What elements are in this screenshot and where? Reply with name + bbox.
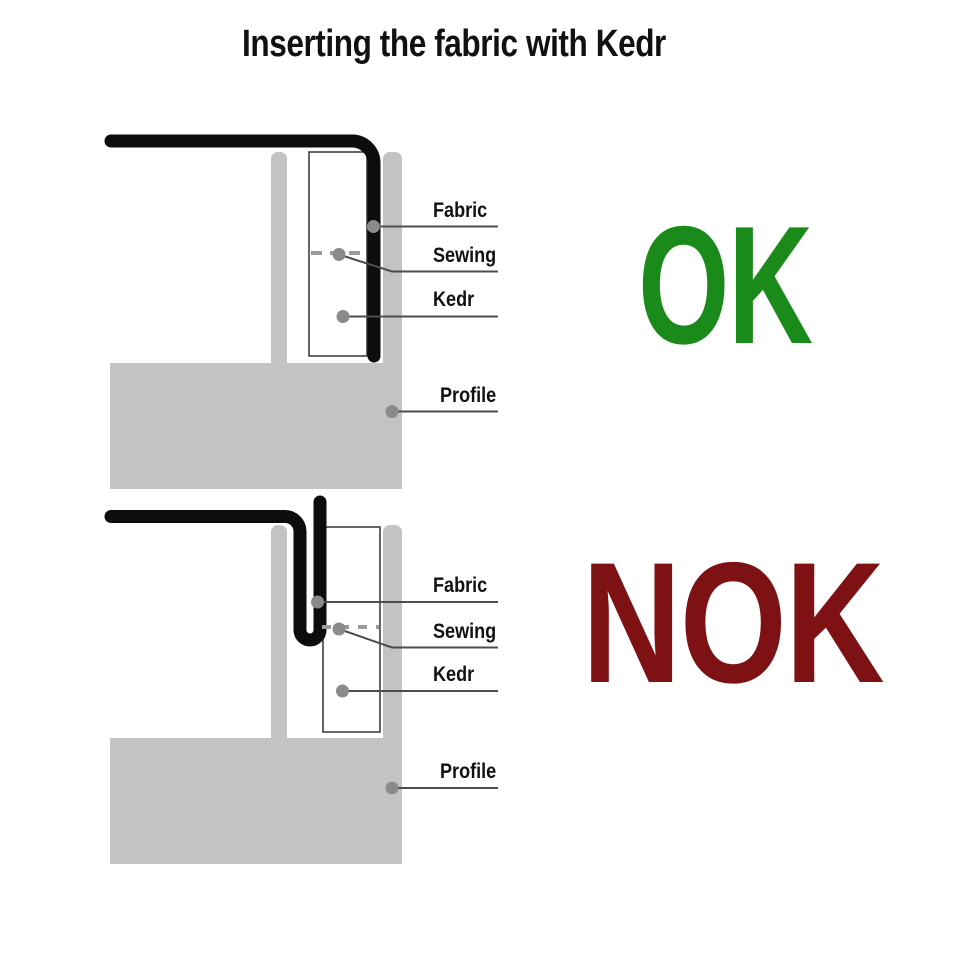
- verdict-ok-text: OK: [638, 201, 812, 369]
- nok-kedr-box: [323, 527, 380, 732]
- nok-label-kedr: Kedr: [433, 664, 474, 685]
- ok-profile-right-wall: [383, 152, 402, 370]
- ok-label-sewing: Sewing: [433, 245, 496, 266]
- ok-sewing-dot: [333, 248, 346, 261]
- nok-profile-base: [110, 738, 402, 864]
- ok-kedr-dot: [337, 310, 350, 323]
- nok-kedr-dot: [336, 685, 349, 698]
- ok-label-fabric: Fabric: [433, 200, 487, 221]
- ok-profile-dot: [386, 405, 399, 418]
- ok-fabric-dot: [367, 220, 380, 233]
- ok-profile-base: [110, 363, 402, 489]
- diagram-ok: [110, 141, 498, 489]
- cross-section-diagrams: [0, 0, 962, 962]
- ok-label-profile: Profile: [440, 385, 496, 406]
- nok-profile-left-wall: [271, 525, 287, 745]
- nok-fabric-line: [111, 502, 320, 640]
- infographic-canvas: Inserting the fabric with Kedr: [0, 0, 962, 962]
- nok-label-profile: Profile: [440, 761, 496, 782]
- verdict-nok-text: NOK: [582, 537, 883, 709]
- ok-profile-left-wall: [271, 152, 287, 370]
- nok-profile-dot: [386, 782, 399, 795]
- ok-label-kedr: Kedr: [433, 289, 474, 310]
- nok-profile-right-wall: [383, 525, 402, 745]
- nok-label-fabric: Fabric: [433, 575, 487, 596]
- nok-fabric-dot: [311, 596, 324, 609]
- nok-sewing-dot: [333, 623, 346, 636]
- nok-label-sewing: Sewing: [433, 621, 496, 642]
